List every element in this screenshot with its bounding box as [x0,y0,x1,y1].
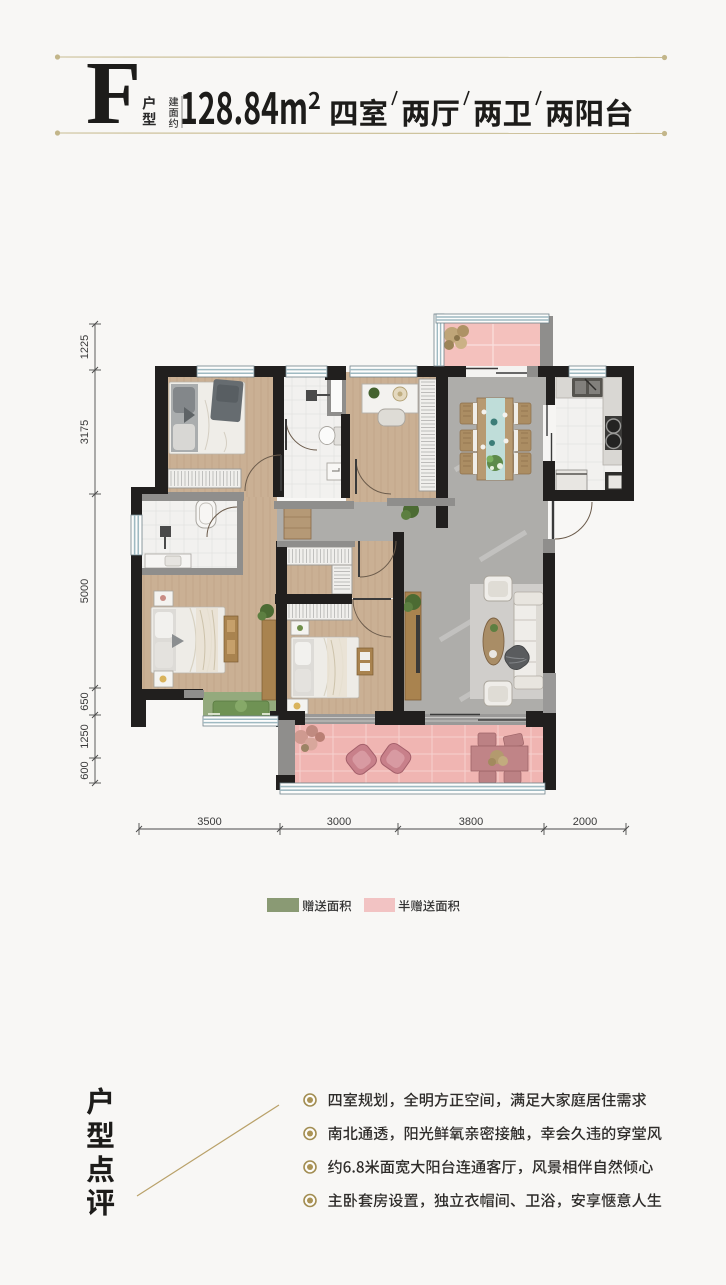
svg-text:1250: 1250 [79,724,91,748]
svg-text:600: 600 [79,761,91,779]
svg-text:5000: 5000 [79,579,91,603]
svg-text:1225: 1225 [79,335,91,359]
svg-text:650: 650 [79,692,91,710]
svg-text:F: F [86,44,141,143]
svg-text:3000: 3000 [327,816,351,828]
svg-text:3175: 3175 [79,420,91,444]
svg-text:3800: 3800 [459,816,483,828]
svg-text:2000: 2000 [573,816,597,828]
svg-text:3500: 3500 [197,816,221,828]
